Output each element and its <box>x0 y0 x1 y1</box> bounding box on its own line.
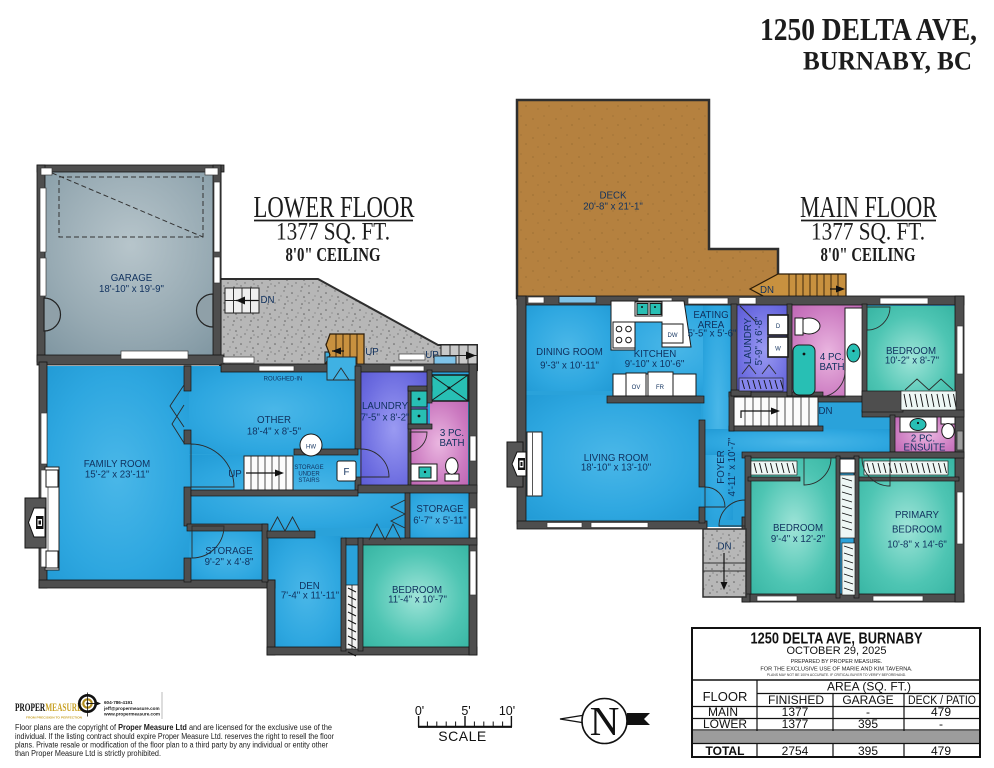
svg-text:1377: 1377 <box>782 717 809 731</box>
svg-text:604-786-4191: 604-786-4191 <box>104 700 133 705</box>
svg-text:OCTOBER 29, 2025: OCTOBER 29, 2025 <box>786 645 886 657</box>
svg-text:10': 10' <box>499 704 515 718</box>
svg-text:UP: UP <box>228 469 241 480</box>
svg-text:DECK: DECK <box>600 191 627 202</box>
svg-text:PRIMARY: PRIMARY <box>895 510 940 521</box>
svg-text:479: 479 <box>931 744 951 758</box>
svg-text:W: W <box>775 347 781 353</box>
svg-text:9'-3" x 10'-11": 9'-3" x 10'-11" <box>540 361 599 372</box>
svg-text:FOYER: FOYER <box>716 450 727 483</box>
svg-text:BATH: BATH <box>439 438 464 449</box>
svg-text:8'0" CEILING: 8'0" CEILING <box>821 244 916 266</box>
svg-text:UNDER: UNDER <box>298 472 320 478</box>
svg-text:11'-4" x 10'-7": 11'-4" x 10'-7" <box>388 595 447 606</box>
svg-text:10'-2" x 8'-7": 10'-2" x 8'-7" <box>885 356 940 367</box>
svg-text:STORAGE: STORAGE <box>205 546 253 557</box>
svg-text:N: N <box>590 698 620 744</box>
svg-text:DN: DN <box>261 295 275 306</box>
svg-text:18'-10" x 13'-10": 18'-10" x 13'-10" <box>581 463 652 474</box>
svg-text:6'-7" x 5'-11": 6'-7" x 5'-11" <box>413 516 467 527</box>
svg-text:PLANS MAY NOT BE 100% ACCURATE: PLANS MAY NOT BE 100% ACCURATE. IF CRITI… <box>767 673 906 677</box>
svg-text:DINING ROOM: DINING ROOM <box>536 347 603 358</box>
svg-text:20'-8" x 21'-1": 20'-8" x 21'-1" <box>583 202 643 213</box>
svg-text:FAMILY ROOM: FAMILY ROOM <box>84 459 150 470</box>
svg-text:1250 DELTA AVE,: 1250 DELTA AVE, <box>760 11 977 47</box>
svg-text:OV: OV <box>632 385 641 391</box>
svg-text:ENSUITE: ENSUITE <box>904 443 947 454</box>
svg-text:2754: 2754 <box>782 744 809 758</box>
svg-text:STORAGE: STORAGE <box>416 504 464 515</box>
svg-text:LOWER: LOWER <box>703 717 747 731</box>
svg-text:www.propermeasure.com: www.propermeasure.com <box>103 711 160 716</box>
svg-text:OTHER: OTHER <box>257 415 291 426</box>
svg-text:UP: UP <box>365 347 378 358</box>
svg-text:FLOOR: FLOOR <box>703 689 748 704</box>
svg-text:-: - <box>939 717 943 731</box>
svg-text:5': 5' <box>461 704 470 718</box>
svg-text:SCALE: SCALE <box>438 728 486 744</box>
svg-text:FR: FR <box>656 385 665 391</box>
svg-text:ROUGHED-IN: ROUGHED-IN <box>264 377 303 383</box>
svg-text:BEDROOM: BEDROOM <box>773 523 823 534</box>
svg-text:F: F <box>344 467 350 478</box>
svg-text:9'-10" x 10'-6": 9'-10" x 10'-6" <box>625 359 685 370</box>
svg-text:GARAGE: GARAGE <box>111 273 153 284</box>
svg-text:7'-5" x 8'-2": 7'-5" x 8'-2" <box>361 413 410 424</box>
svg-text:8'0" CEILING: 8'0" CEILING <box>286 244 381 266</box>
svg-text:AREA (SQ. FT.): AREA (SQ. FT.) <box>827 680 911 694</box>
svg-text:DN: DN <box>760 285 774 296</box>
svg-text:1377 SQ. FT.: 1377 SQ. FT. <box>811 219 925 246</box>
svg-text:15'-2" x 23'-11": 15'-2" x 23'-11" <box>85 470 150 481</box>
svg-text:PREPARED BY PROPER MEASURE.: PREPARED BY PROPER MEASURE. <box>791 659 883 665</box>
svg-text:395: 395 <box>858 744 878 758</box>
svg-text:D: D <box>776 324 781 330</box>
svg-text:4'-11" x 10'-7": 4'-11" x 10'-7" <box>727 437 738 496</box>
svg-text:9'-4" x 12'-2": 9'-4" x 12'-2" <box>771 534 826 545</box>
svg-text:5'-5" x 5'-6": 5'-5" x 5'-6" <box>688 329 737 340</box>
svg-text:BATH: BATH <box>819 362 844 373</box>
svg-text:DN: DN <box>718 542 732 553</box>
svg-text:DW: DW <box>668 333 678 339</box>
svg-text:than Proper Measure Ltd is str: than Proper Measure Ltd is strictly proh… <box>15 749 161 758</box>
svg-text:PROPERMEASURE: PROPERMEASURE <box>15 702 82 714</box>
svg-text:10'-8" x 14'-6": 10'-8" x 14'-6" <box>887 540 947 551</box>
svg-text:STAIRS: STAIRS <box>298 478 319 484</box>
svg-text:DN: DN <box>819 406 833 417</box>
svg-text:jeff@propermeasure.com: jeff@propermeasure.com <box>103 706 160 711</box>
svg-text:FOR THE EXCLUSIVE USE OF MARIE: FOR THE EXCLUSIVE USE OF MARIE AND KIM T… <box>760 667 913 673</box>
svg-text:FROM PRECISION TO PERFECTION: FROM PRECISION TO PERFECTION <box>26 716 83 720</box>
svg-text:BURNABY, BC: BURNABY, BC <box>803 47 972 76</box>
svg-text:18'-4" x 8'-5": 18'-4" x 8'-5" <box>247 427 302 438</box>
svg-text:5'-9" x 6'-8": 5'-9" x 6'-8" <box>754 316 765 365</box>
svg-text:18'-10" x 19'-9": 18'-10" x 19'-9" <box>99 284 165 295</box>
svg-text:9'-2" x 4'-8": 9'-2" x 4'-8" <box>205 557 254 568</box>
svg-text:BEDROOM: BEDROOM <box>892 525 942 536</box>
svg-text:1377 SQ. FT.: 1377 SQ. FT. <box>276 219 390 246</box>
svg-text:LAUNDRY: LAUNDRY <box>362 401 409 412</box>
svg-text:395: 395 <box>858 717 878 731</box>
svg-text:Floor plans are the copyright: Floor plans are the copyright of Proper … <box>15 723 332 732</box>
svg-text:LAUNDRY: LAUNDRY <box>743 317 754 364</box>
svg-text:0': 0' <box>415 704 424 718</box>
svg-text:TOTAL: TOTAL <box>706 744 745 758</box>
svg-text:7'-4" x 11'-11": 7'-4" x 11'-11" <box>281 591 340 602</box>
svg-text:HW: HW <box>306 445 316 451</box>
svg-text:STORAGE: STORAGE <box>294 465 323 471</box>
